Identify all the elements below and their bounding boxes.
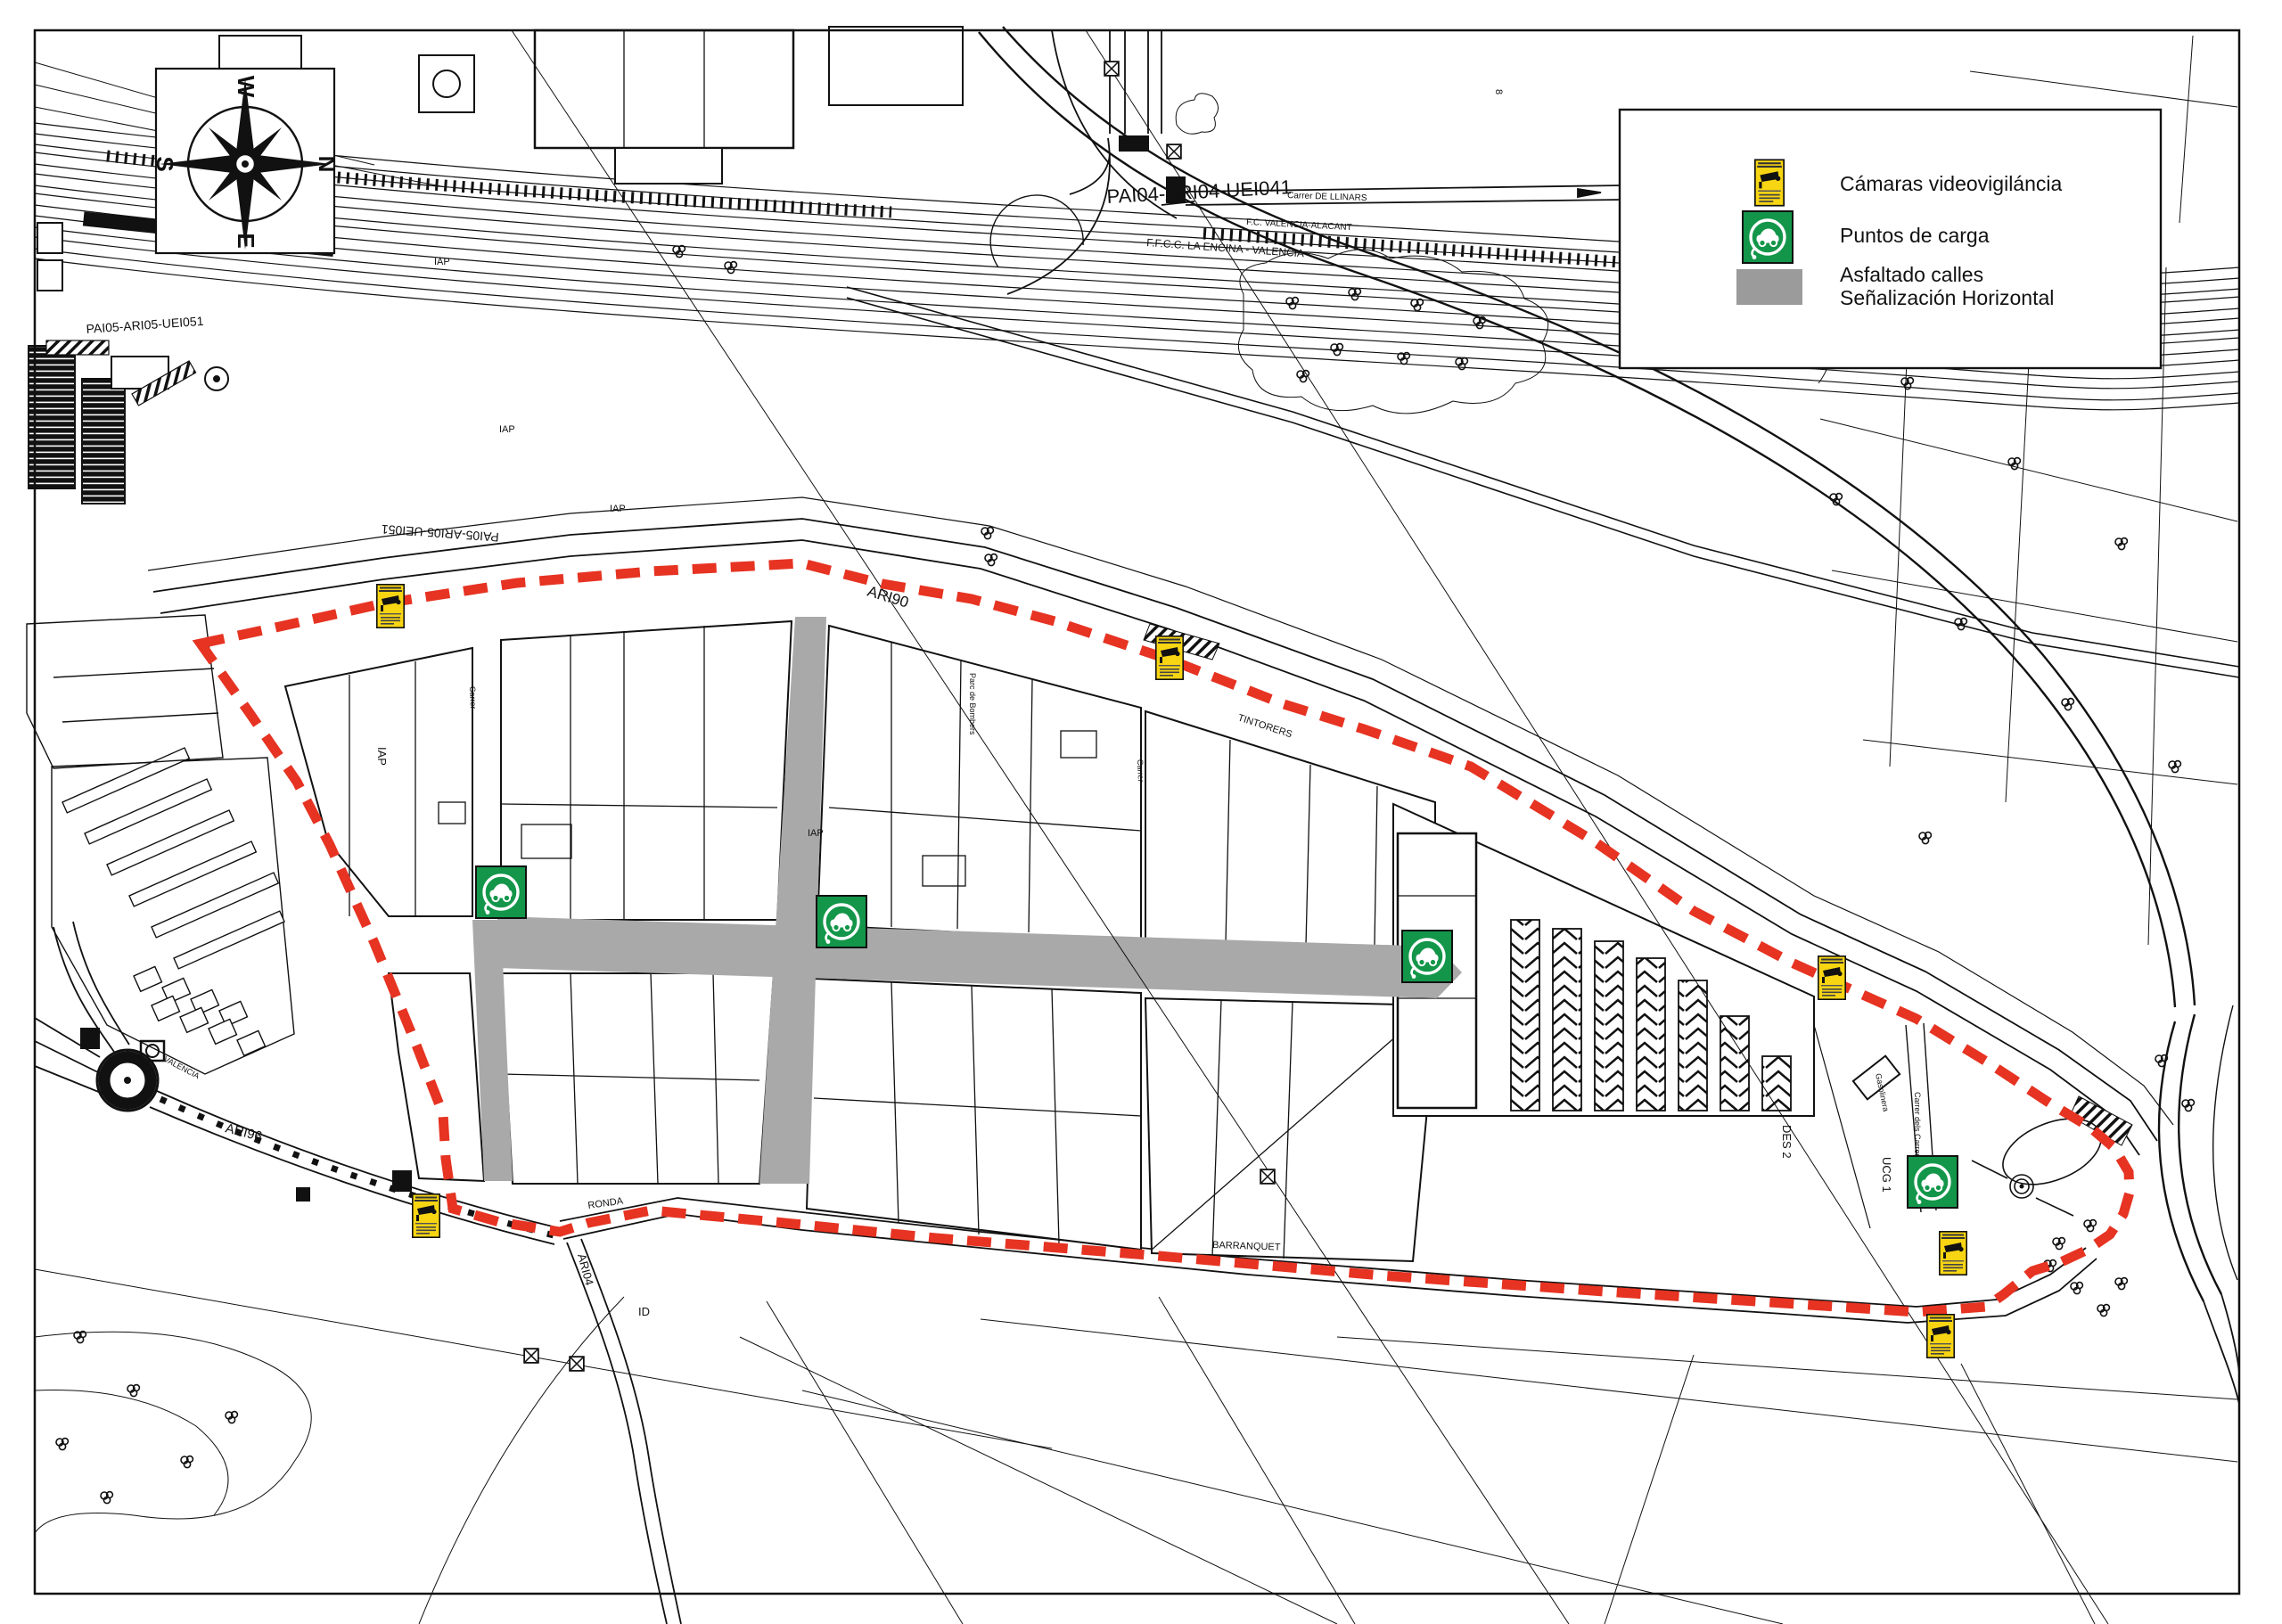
legend-label-charging: Puntos de carga <box>1840 224 1990 247</box>
map-label: Carrer <box>1136 759 1145 783</box>
pylon-icon <box>1104 62 1119 76</box>
camera-sign-icon <box>1927 1315 1954 1357</box>
map-label: IAP <box>808 828 824 839</box>
camera-sign-icon <box>413 1194 439 1237</box>
compass-north: N <box>314 156 341 173</box>
map-label: ID <box>638 1305 650 1318</box>
map-label: DES 2 <box>1780 1125 1794 1159</box>
legend-label-cameras: Cámaras videovigiláncia <box>1840 172 2062 195</box>
ev-charge-icon <box>1402 931 1452 982</box>
camera-sign-icon <box>1940 1232 1966 1275</box>
compass-rose: W N E S <box>152 69 341 253</box>
legend-label-asphalt-1: Asfaltado calles <box>1840 263 1983 286</box>
camera-sign-icon <box>377 585 404 627</box>
crossing-mark <box>1119 135 1149 152</box>
compass-south: S <box>152 156 178 171</box>
map-label: IAP <box>610 504 626 514</box>
map-label: IAP <box>499 424 515 435</box>
map-label: Carrer <box>468 686 478 709</box>
ev-charge-icon <box>1743 211 1793 263</box>
compass-east: E <box>233 233 259 248</box>
crossing-mark <box>392 1170 412 1192</box>
ev-charge-icon <box>476 866 526 918</box>
map-label: IAP <box>375 747 389 766</box>
plan-sheet: PAI04-ARI04-UEI041Carrer DE LLINARSF.C. … <box>0 0 2282 1624</box>
pylon-icon <box>524 1349 538 1363</box>
camera-sign-icon <box>1818 956 1845 999</box>
map-label: IAP <box>434 257 450 267</box>
crossing-mark <box>296 1187 310 1202</box>
pylon-icon <box>570 1357 584 1371</box>
camera-sign-icon <box>1156 636 1183 679</box>
city-plan-map: PAI04-ARI04-UEI041Carrer DE LLINARSF.C. … <box>0 0 2282 1624</box>
asphalt-swatch <box>1736 269 1802 305</box>
map-label: Parc de Bombers <box>968 673 977 735</box>
map-label: 8 <box>1493 89 1504 94</box>
compass-west: W <box>233 76 259 98</box>
legend: Cámaras videovigiláncia Puntos de carga … <box>1620 110 2161 368</box>
camera-sign-icon <box>1755 160 1784 205</box>
ev-charge-icon <box>1908 1156 1958 1208</box>
ev-charge-icon <box>817 896 866 947</box>
pylon-icon <box>1260 1169 1275 1184</box>
map-label: UCG 1 <box>1880 1157 1893 1193</box>
legend-label-asphalt-2: Señalización Horizontal <box>1840 286 2054 309</box>
crossing-mark <box>80 1028 100 1049</box>
pylon-icon <box>1167 144 1181 159</box>
